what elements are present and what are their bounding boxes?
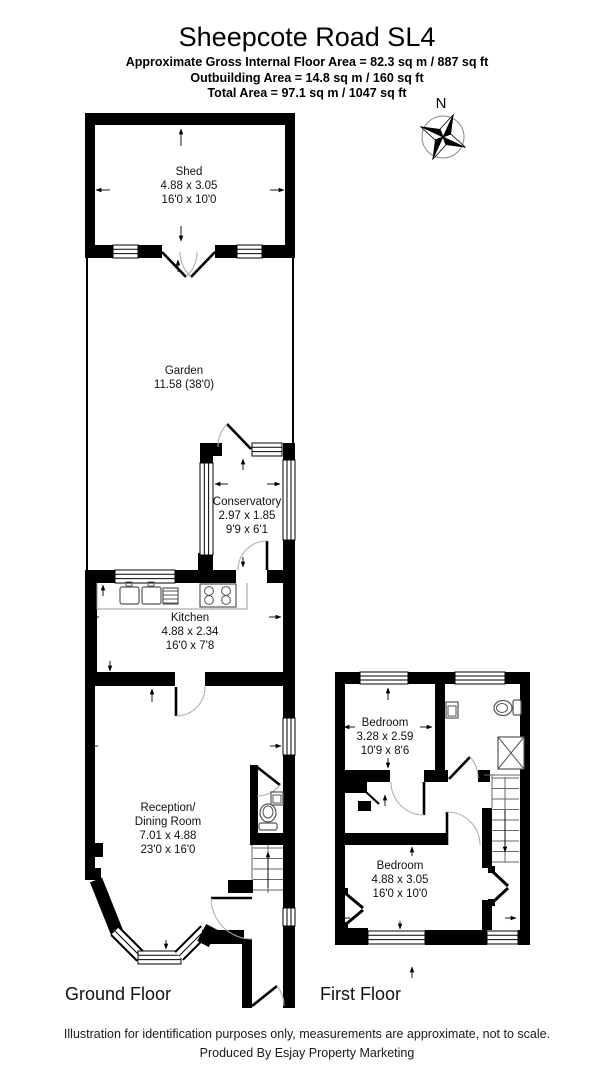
- floor-plan-graphic: [0, 0, 615, 1080]
- ground-floor-label: Ground Floor: [65, 984, 171, 1005]
- shower: [498, 737, 524, 769]
- room-size-metric: 4.88 x 2.34: [162, 625, 219, 639]
- room-size-metric: 4.88 x 3.05: [161, 179, 218, 193]
- disclaimer-text: Illustration for identification purposes…: [64, 1027, 550, 1041]
- bathroom-toilet: [494, 700, 521, 716]
- room-size: 11.58 (38'0): [154, 378, 214, 392]
- room-size-metric: 3.28 x 2.59: [357, 730, 414, 744]
- wc-sink: [271, 792, 283, 805]
- room-size-imperial: 10'9 x 8'6: [357, 744, 414, 758]
- wc-toilet: [259, 804, 277, 830]
- room-name: Shed: [161, 165, 218, 179]
- bathroom-fixtures: [446, 700, 524, 769]
- room-size-metric: 4.88 x 3.05: [372, 873, 429, 887]
- gross-internal-area-text: Approximate Gross Internal Floor Area = …: [126, 55, 489, 69]
- room-size-metric: 7.01 x 4.88: [135, 829, 201, 843]
- kitchen-label: Kitchen 4.88 x 2.34 16'0 x 7'8: [162, 611, 219, 653]
- room-name: Kitchen: [162, 611, 219, 625]
- room-name-line1: Reception/: [135, 801, 201, 815]
- room-size-metric: 2.97 x 1.85: [213, 509, 281, 523]
- room-name-line2: Dining Room: [135, 815, 201, 829]
- ground-floor-plan: [85, 113, 295, 1008]
- room-size-imperial: 16'0 x 7'8: [162, 639, 219, 653]
- ground-stairs: [252, 845, 283, 893]
- room-size-imperial: 23'0 x 16'0: [135, 843, 201, 857]
- room-name: Bedroom: [372, 859, 429, 873]
- room-size-imperial: 16'0 x 10'0: [372, 887, 429, 901]
- bedroom-front-label: Bedroom 3.28 x 2.59 10'9 x 8'6: [357, 716, 414, 758]
- kitchen-sink-and-hob: [97, 582, 247, 609]
- room-size-imperial: 9'9 x 6'1: [213, 523, 281, 537]
- garden-label: Garden 11.58 (38'0): [154, 364, 214, 392]
- reception-label: Reception/ Dining Room 7.01 x 4.88 23'0 …: [135, 801, 201, 857]
- page-title: Sheepcote Road SL4: [179, 22, 436, 53]
- credit-text: Produced By Esjay Property Marketing: [200, 1046, 415, 1060]
- room-name: Conservatory: [213, 495, 281, 509]
- bedroom-back-label: Bedroom 4.88 x 3.05 16'0 x 10'0: [372, 859, 429, 901]
- compass-north-label: N: [436, 95, 447, 112]
- shed-label: Shed 4.88 x 3.05 16'0 x 10'0: [161, 165, 218, 207]
- bay-window: [85, 868, 244, 964]
- compass-icon: [410, 104, 476, 170]
- room-name: Bedroom: [357, 716, 414, 730]
- room-size-imperial: 16'0 x 10'0: [161, 193, 218, 207]
- outbuilding-area-text: Outbuilding Area = 14.8 sq m / 160 sq ft: [190, 71, 423, 85]
- first-floor-label: First Floor: [320, 984, 401, 1005]
- floorplan-page: Sheepcote Road SL4 Approximate Gross Int…: [0, 0, 615, 1080]
- room-name: Garden: [154, 364, 214, 378]
- bathroom-sink: [446, 702, 458, 718]
- total-area-text: Total Area = 97.1 sq m / 1047 sq ft: [207, 86, 406, 100]
- conservatory-label: Conservatory 2.97 x 1.85 9'9 x 6'1: [213, 495, 281, 537]
